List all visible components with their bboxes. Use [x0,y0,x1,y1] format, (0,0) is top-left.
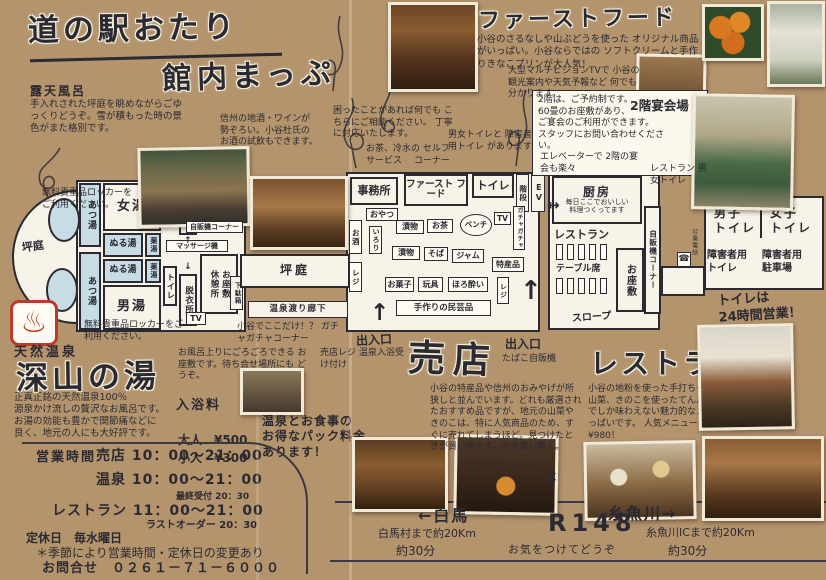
public-phone-label: 公衆電話 [690,228,698,256]
room-office: 事務所 [350,177,398,205]
up-arrow-icon: ↑ [184,236,192,246]
otari-station-map: 道の駅おたり 館内まっぷ 露天風呂 手入れされた坪庭を眺めながらごゆっくりどうぞ… [0,0,826,580]
onsen-corridor: 温泉渡り廊下 [248,301,348,318]
itoigawa-distance: 糸魚川ICまで約20Km [646,526,755,540]
self-service-note: お茶、冷水の セルフサービス コーナー [366,144,454,167]
mens-toilet-label: 男子 トイレ [714,206,756,237]
shop-desc: 小谷の特産品や信州のおみやげが所狭しと並んでいます。どれも厳選されたおすすめ品で… [430,384,582,454]
table-row [556,278,611,298]
gacha-note: 小谷でここだけ！？ ガチャガチャコーナー [237,322,347,345]
room-nuruyu-upper: ぬる湯 [103,233,143,257]
office-note: 困ったことがあれば何でも こちらにご相談ください。 丁寧に対応いたします。 [333,106,458,141]
multivision-tv-note: 大型マルチビジョンTVで 小谷の観光案内や天気予報など 何でも分かります。 [508,66,640,101]
zashiki-rest-note: お風呂上りにごろごろできる お座敷です。待ち合せ場所にも どうぞ。 [178,348,310,383]
room-kitchen: 厨房 毎日ここでおいしい 料理つくってます [552,176,642,224]
photo-rotenburo-bath [137,146,250,228]
tobacco-vending-note: たばこ自販機 [502,354,556,366]
photo-persimmons [702,4,764,61]
room-kusuriyu-upper: 薬湯 [145,233,161,257]
restaurant-wc-note: レストラン 男女トイレ [650,164,712,187]
table-seats-label: テーブル席 [556,264,600,276]
page-subtitle: 館内まっぷ [161,55,336,99]
shelf-toys: 玩具 [418,277,443,292]
onsen-desc: 正真正銘の天然温泉100％ 源泉かけ流しの贅沢なお風呂です。 お湯の効能も豊かで… [14,392,176,441]
tv-corner: TV [186,312,206,325]
shelf-snacks: おやつ [366,208,398,221]
down-arrow-icon: ↓ [184,262,192,272]
shelf-irori: いろり [369,226,382,254]
wc-note: 男女トイレと 障害者用トイレ があります [448,130,536,153]
shelf-sake: お酒 [349,220,362,254]
entrance-label-right: 出入口 [505,337,541,352]
photo-restaurant-interior [702,436,824,521]
hot-spring-icon: ♨ [21,308,48,338]
table-row [556,244,611,264]
room-nuruyu-lower: ぬる湯 [103,259,143,283]
direction-itoigawa: 糸魚川→ [608,504,677,524]
drive-safe-note: お気をつけてどうぞ [508,543,616,557]
road-line-bottom [330,560,826,562]
photo-softcream [767,1,825,87]
room-atsuyu-lower: あつ湯 [79,252,101,330]
entrance-label-left: 出入口 [356,332,393,349]
bench: ベンチ [460,214,492,236]
shop-title: 売店 [407,334,499,384]
bath-vending-corner: 自販機コーナー [186,221,243,233]
gacha-corner: ガチャガチャ [513,206,525,250]
hours-border [22,442,308,574]
hakuba-distance: 白馬村まで約20Km [378,527,476,541]
room-elevator: EV [531,174,545,212]
register-right: レジ [497,277,509,304]
shelf-folkcraft: 手作りの民芸品 [396,300,491,316]
locker-note-2: 無料貴重品ロッカーをご利用ください。 [84,320,184,343]
rotenburo-title: 露天風呂 [30,84,86,99]
left-right-arrow-icon: ↔ [547,196,560,214]
rotenburo-desc: 手入れされた坪庭を眺めながらごゆっくりどうぞ。雪が積もった時の景色がまた格別です… [30,99,182,135]
slope-label: スロープ [572,311,612,327]
direction-hakuba: ←白馬 [418,506,469,526]
toilet-corridor [661,266,705,296]
room-kusuriyu-lower: 薬湯 [145,259,161,283]
shelf-tea: お茶 [427,219,453,233]
shop-register-note: 売店レジ 温泉入浴受け付け [320,348,410,371]
elevator-note: エレベーターで 2階の宴会も楽々 [540,152,640,175]
tv-shop: TV [494,212,511,225]
updown-arrow-icon: ↕ [545,468,559,488]
bath-fee-label: 入浴料 [176,398,221,415]
room-toilet-lower: トイレ [163,266,177,306]
hakuba-time: 約30分 [396,544,435,559]
sake-note: 信州の地酒・ワインが 勢ぞろい。小谷杜氏の お酒の試飲もできます。 [220,114,320,149]
locker-note-1: 無料貴重品ロッカーをご利用ください。 [42,188,134,211]
entrance-up-arrow-icon: ↑ [370,300,389,326]
shelf-pickles-2: 漬物 [392,246,420,260]
photo-shop-interior-top [250,176,348,250]
entrance-up-arrow-icon: ↑ [520,276,542,306]
photo-soba-set [697,323,795,431]
fastfood-title: ファーストフード [478,4,677,36]
room-tatami-seats: お座敷 [616,248,644,312]
itoigawa-time: 約30分 [668,544,707,559]
register-left: レジ [349,262,362,292]
hot-spring-badge: ♨ [10,300,58,346]
vending-corner-strip: 自販機コーナー [644,206,661,314]
shelf-specialty: 特産品 [492,257,524,272]
shelf-horoyoi: ほろ酔い [448,277,488,292]
photo-storefront [388,2,478,92]
photo-banquet-hall [691,93,795,211]
shelf-pickles-1: 漬物 [396,220,424,234]
restaurant-room-label: レストラン [554,228,609,242]
shelf-sweets: お菓子 [385,277,414,292]
onsen-title: 深山の湯 [16,356,161,399]
massage-chair: マッサージ機 [166,240,228,252]
accessible-toilet-label: 障害者用 トイレ [707,250,747,276]
accessible-parking-label: 障害者用 駐車場 [762,250,802,276]
page-title: 道の駅おたり [28,8,239,51]
shelf-soba: そば [424,247,448,261]
room-toilet-shop: トイレ [472,174,514,198]
room-center-courtyard: 坪庭 [240,254,350,288]
public-phone-icon: ☎ [677,252,691,267]
shelf-jam: ジャム [452,249,484,263]
toilet-24h-note: トイレは 24時間営業！ [717,286,826,327]
room-fastfood-counter: ファースト フード [404,174,468,206]
banquet-label: 2階宴会場 [630,98,689,114]
